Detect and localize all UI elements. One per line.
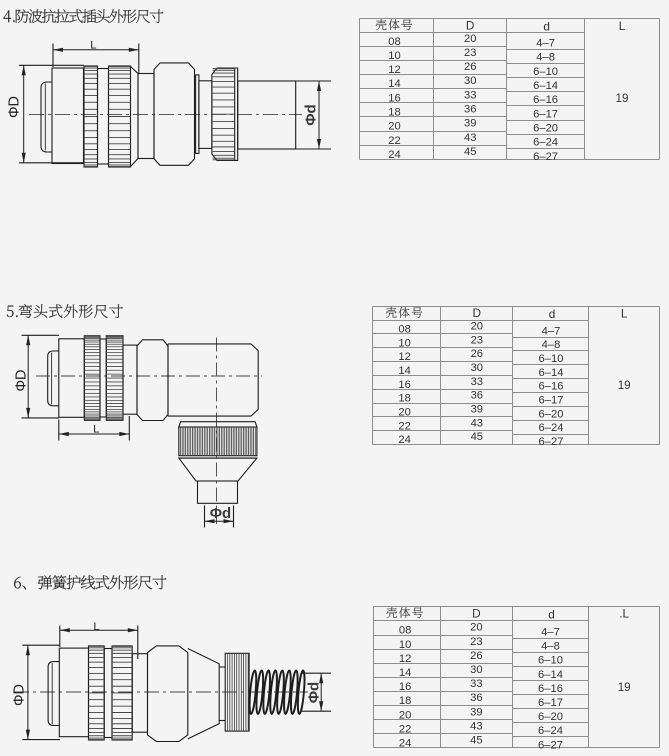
- svg-text:26: 26: [464, 61, 476, 73]
- svg-text:4–7: 4–7: [541, 627, 560, 639]
- svg-text:6–24: 6–24: [538, 725, 563, 737]
- svg-text:Φd: Φd: [303, 104, 320, 125]
- svg-text:L: L: [90, 40, 96, 52]
- svg-text:39: 39: [464, 118, 476, 130]
- svg-text:12: 12: [388, 64, 400, 76]
- svg-text:12: 12: [398, 351, 410, 363]
- svg-text:6–14: 6–14: [539, 367, 564, 379]
- svg-text:6–20: 6–20: [538, 711, 563, 723]
- svg-text:6–14: 6–14: [533, 80, 558, 92]
- svg-text:4–8: 4–8: [541, 641, 560, 653]
- svg-text:10: 10: [388, 50, 400, 62]
- svg-text:4–7: 4–7: [536, 38, 555, 50]
- svg-text:D: D: [466, 19, 475, 33]
- svg-text:08: 08: [398, 324, 410, 336]
- svg-text:43: 43: [464, 132, 476, 144]
- svg-text:45: 45: [471, 431, 483, 443]
- svg-text:4–8: 4–8: [536, 52, 555, 64]
- svg-text:L: L: [93, 423, 99, 435]
- svg-text:6–16: 6–16: [538, 683, 563, 695]
- svg-text:22: 22: [398, 420, 410, 432]
- svg-text:39: 39: [470, 706, 482, 718]
- svg-text:30: 30: [464, 75, 476, 87]
- svg-text:6–27: 6–27: [533, 151, 558, 163]
- svg-text:ΦD: ΦD: [7, 96, 23, 118]
- svg-text:16: 16: [388, 92, 400, 104]
- svg-text:45: 45: [470, 735, 482, 747]
- svg-text:20: 20: [399, 709, 411, 721]
- svg-text:23: 23: [470, 636, 482, 648]
- svg-text:20: 20: [388, 121, 400, 133]
- svg-text:30: 30: [471, 362, 483, 374]
- svg-text:33: 33: [464, 89, 476, 101]
- svg-text:22: 22: [388, 135, 400, 147]
- svg-text:6–10: 6–10: [538, 655, 563, 667]
- svg-text:20: 20: [471, 321, 483, 333]
- svg-text:ΦD: ΦD: [11, 684, 27, 706]
- svg-text:33: 33: [471, 376, 483, 388]
- svg-text:20: 20: [470, 622, 482, 634]
- svg-text:Φd: Φd: [210, 505, 231, 522]
- svg-text:12: 12: [399, 653, 411, 665]
- svg-text:14: 14: [398, 365, 410, 377]
- svg-text:10: 10: [399, 639, 411, 651]
- svg-text:10: 10: [398, 337, 410, 349]
- svg-text:23: 23: [464, 47, 476, 59]
- svg-text:19: 19: [618, 379, 631, 392]
- svg-text:L: L: [93, 621, 99, 633]
- svg-text:36: 36: [471, 390, 483, 402]
- svg-text:22: 22: [399, 723, 411, 735]
- svg-text:6–24: 6–24: [533, 137, 558, 149]
- svg-text:6–17: 6–17: [538, 697, 563, 709]
- svg-text:.L: .L: [619, 607, 629, 621]
- svg-text:6–27: 6–27: [539, 436, 564, 448]
- svg-text:D: D: [472, 606, 481, 620]
- svg-text:19: 19: [616, 92, 629, 105]
- svg-text:08: 08: [399, 625, 411, 637]
- svg-text:Φd: Φd: [306, 682, 323, 703]
- svg-text:30: 30: [470, 664, 482, 676]
- svg-text:6–16: 6–16: [539, 381, 564, 393]
- svg-text:14: 14: [388, 78, 400, 90]
- svg-text:d: d: [548, 607, 555, 621]
- svg-text:18: 18: [399, 695, 411, 707]
- svg-text:20: 20: [464, 33, 476, 45]
- svg-text:d: d: [543, 20, 550, 34]
- svg-text:36: 36: [464, 104, 476, 116]
- svg-text:ΦD: ΦD: [14, 369, 30, 391]
- svg-text:6–24: 6–24: [539, 422, 564, 434]
- svg-text:26: 26: [470, 650, 482, 662]
- svg-text:19: 19: [618, 681, 631, 694]
- svg-text:45: 45: [464, 146, 476, 158]
- svg-text:36: 36: [470, 692, 482, 704]
- svg-text:08: 08: [388, 36, 400, 48]
- svg-text:43: 43: [470, 720, 482, 732]
- svg-text:L: L: [619, 19, 626, 33]
- svg-text:16: 16: [399, 681, 411, 693]
- svg-text:6–10: 6–10: [539, 353, 564, 365]
- svg-text:39: 39: [471, 404, 483, 416]
- svg-text:4–7: 4–7: [542, 325, 561, 337]
- svg-text:23: 23: [471, 334, 483, 346]
- svg-text:6–14: 6–14: [538, 669, 563, 681]
- svg-text:4–8: 4–8: [542, 339, 561, 351]
- svg-text:6–10: 6–10: [533, 66, 558, 78]
- svg-text:33: 33: [470, 678, 482, 690]
- svg-text:6–17: 6–17: [533, 108, 558, 120]
- svg-text:24: 24: [388, 149, 400, 161]
- svg-text:D: D: [473, 306, 482, 320]
- svg-text:14: 14: [399, 667, 411, 679]
- svg-text:24: 24: [399, 738, 411, 750]
- svg-text:24: 24: [398, 434, 410, 446]
- svg-text:18: 18: [388, 107, 400, 119]
- svg-text:18: 18: [398, 393, 410, 405]
- svg-text:43: 43: [471, 417, 483, 429]
- svg-text:L: L: [621, 307, 628, 321]
- svg-text:6–20: 6–20: [533, 123, 558, 135]
- svg-text:6–27: 6–27: [538, 739, 563, 751]
- svg-text:6–16: 6–16: [533, 94, 558, 106]
- svg-text:20: 20: [398, 407, 410, 419]
- svg-text:d: d: [549, 307, 556, 321]
- svg-text:26: 26: [471, 348, 483, 360]
- svg-text:6–17: 6–17: [539, 395, 564, 407]
- svg-text:6–20: 6–20: [539, 408, 564, 420]
- svg-text:16: 16: [398, 379, 410, 391]
